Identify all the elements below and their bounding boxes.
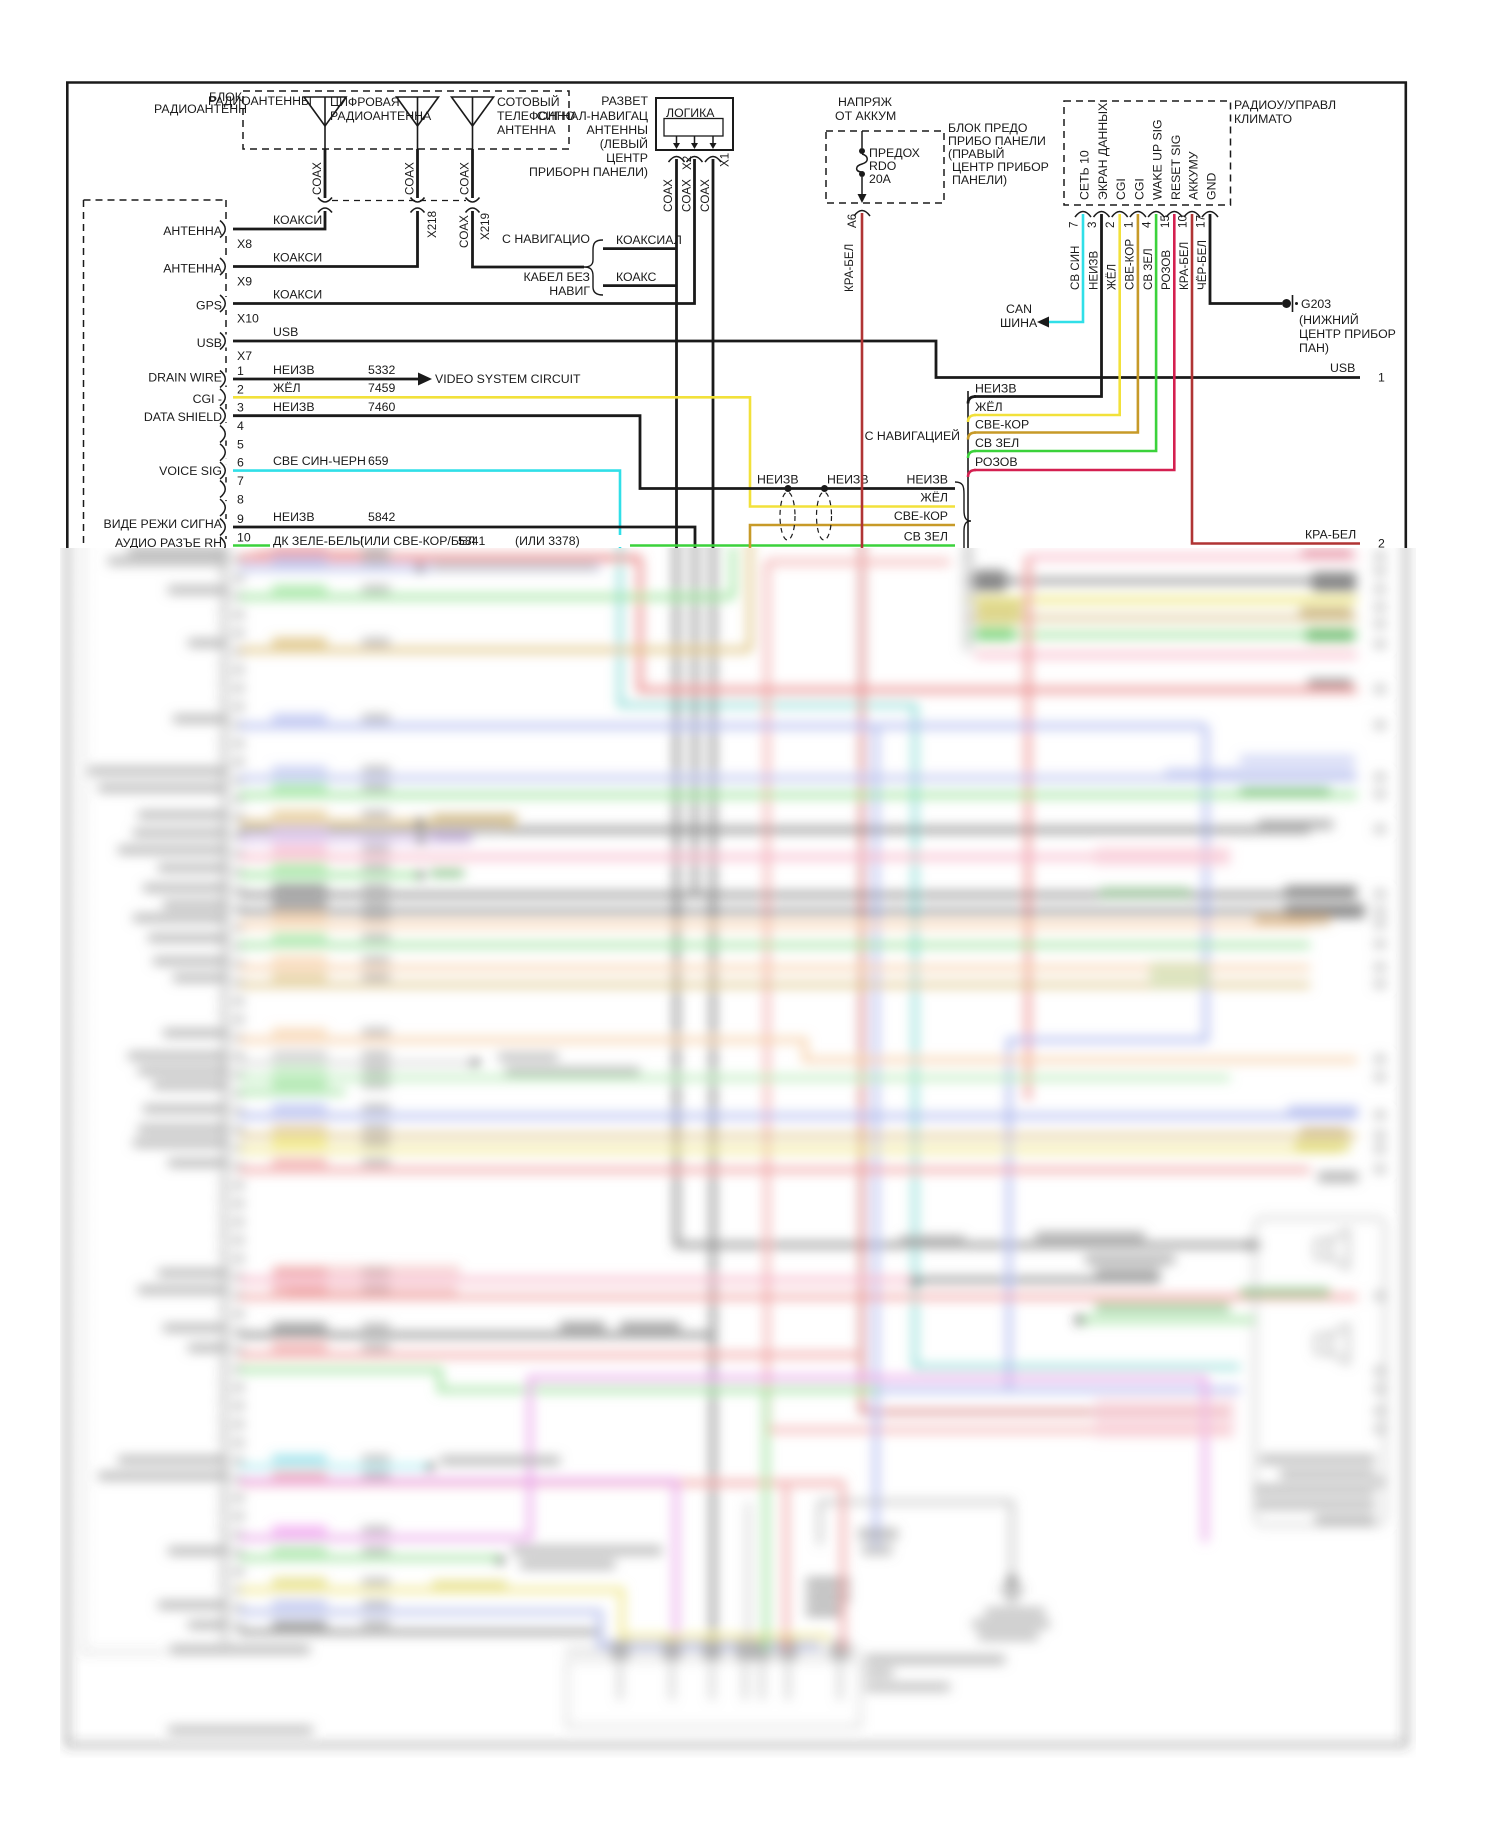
svg-text:ПАНЕЛИ): ПАНЕЛИ) bbox=[952, 173, 1007, 187]
svg-text:2: 2 bbox=[237, 382, 244, 396]
svg-text:СВЕ-КОР: СВЕ-КОР bbox=[1124, 239, 1137, 290]
svg-text:КРА-БЕЛ: КРА-БЕЛ bbox=[1178, 242, 1191, 290]
svg-text:17: 17 bbox=[1195, 215, 1208, 228]
svg-text:7: 7 bbox=[237, 474, 244, 488]
svg-text:RDO: RDO bbox=[869, 159, 896, 173]
svg-text:НЕИЗВ: НЕИЗВ bbox=[975, 382, 1017, 396]
svg-text:АНТЕННЫ: АНТЕННЫ bbox=[587, 123, 648, 137]
svg-text:КАБЕЛ БЕЗ: КАБЕЛ БЕЗ bbox=[523, 270, 590, 284]
svg-text:СВ ЗЕЛ: СВ ЗЕЛ bbox=[904, 530, 948, 544]
svg-text:РОЗОВ: РОЗОВ bbox=[1160, 250, 1173, 290]
svg-text:9: 9 bbox=[237, 512, 244, 526]
svg-text:ДК ЗЕЛЕ-БЕЛЫ: ДК ЗЕЛЕ-БЕЛЫ bbox=[273, 534, 363, 548]
svg-text:COAX: COAX bbox=[459, 162, 472, 195]
svg-text:5: 5 bbox=[237, 437, 244, 451]
svg-text:CGI: CGI bbox=[1132, 178, 1146, 200]
svg-text:GPS: GPS bbox=[196, 299, 222, 313]
svg-text:USB: USB bbox=[197, 336, 222, 350]
svg-text:НЕИЗВ: НЕИЗВ bbox=[273, 510, 315, 524]
svg-text:COAX: COAX bbox=[458, 215, 471, 248]
svg-text:ЖЁЛ: ЖЁЛ bbox=[1106, 264, 1119, 290]
svg-text:VOICE SIG: VOICE SIG bbox=[159, 464, 222, 478]
svg-text:CGI -: CGI - bbox=[193, 392, 222, 406]
svg-text:НЕИЗВ: НЕИЗВ bbox=[1087, 251, 1100, 290]
svg-text:СИГНАЛ-НАВИГАЦ: СИГНАЛ-НАВИГАЦ bbox=[537, 109, 648, 123]
svg-text:АККУМУ: АККУМУ bbox=[1187, 151, 1201, 200]
svg-text:COAX: COAX bbox=[681, 179, 694, 212]
svg-text:СВЕ СИН-ЧЕРН: СВЕ СИН-ЧЕРН bbox=[273, 454, 366, 468]
svg-text:СВЕ-КОР: СВЕ-КОР bbox=[975, 418, 1029, 432]
svg-text:РОЗОВ: РОЗОВ bbox=[975, 455, 1018, 469]
svg-text:15: 15 bbox=[1159, 215, 1172, 228]
svg-text:КОАКС: КОАКС bbox=[616, 270, 657, 284]
svg-text:АНТЕННА: АНТЕННА bbox=[163, 224, 223, 238]
svg-text:X2: X2 bbox=[681, 156, 694, 170]
svg-text:(НИЖНИЙ: (НИЖНИЙ bbox=[1299, 312, 1359, 327]
svg-text:КРА-БЕЛ: КРА-БЕЛ bbox=[1305, 528, 1356, 542]
svg-text:АУДИО РАЗЪЕ RH: АУДИО РАЗЪЕ RH bbox=[115, 536, 222, 550]
svg-text:ЭКРАН ДАННЫХ: ЭКРАН ДАННЫХ bbox=[1096, 103, 1110, 200]
svg-text:GND: GND bbox=[1205, 173, 1219, 200]
svg-text:20A: 20A bbox=[869, 172, 892, 186]
svg-text:РАДИОУ/УПРАВЛ: РАДИОУ/УПРАВЛ bbox=[1234, 98, 1336, 112]
svg-text:СВЕ-КОР: СВЕ-КОР bbox=[894, 509, 948, 523]
svg-text:НЕИЗВ: НЕИЗВ bbox=[906, 473, 948, 487]
svg-text:БЛОК ПРЕДО: БЛОК ПРЕДО bbox=[948, 121, 1027, 135]
svg-text:X218: X218 bbox=[426, 211, 439, 238]
svg-text:ШИНА: ШИНА bbox=[1000, 316, 1038, 330]
svg-text:СВ СИН: СВ СИН bbox=[1069, 246, 1082, 290]
svg-text:НЕИЗВ: НЕИЗВ bbox=[757, 473, 799, 487]
svg-text:КЛИМАТО: КЛИМАТО bbox=[1234, 112, 1292, 126]
svg-text:ЦЕНТР: ЦЕНТР bbox=[606, 151, 648, 165]
svg-text:НАВИГ: НАВИГ bbox=[549, 284, 590, 298]
svg-text:СОТОВЫЙ: СОТОВЫЙ bbox=[497, 94, 560, 109]
svg-text:8: 8 bbox=[237, 493, 244, 507]
svg-text:С НАВИГАЦИО: С НАВИГАЦИО bbox=[502, 232, 590, 246]
svg-text:СВ ЗЕЛ: СВ ЗЕЛ bbox=[1142, 248, 1155, 290]
svg-text:СВ ЗЕЛ: СВ ЗЕЛ bbox=[975, 436, 1019, 450]
svg-text:(ПРАВЫЙ: (ПРАВЫЙ bbox=[948, 146, 1004, 161]
svg-text:ЦЕНТР ПРИБОР: ЦЕНТР ПРИБОР bbox=[1299, 327, 1396, 341]
svg-text:COAX: COAX bbox=[404, 162, 417, 195]
svg-text:CGI: CGI bbox=[1114, 178, 1128, 200]
svg-text:АНТЕННА: АНТЕННА bbox=[163, 262, 223, 276]
svg-text:ПРЕДОХ: ПРЕДОХ bbox=[869, 146, 920, 160]
svg-text:ЖЁЛ: ЖЁЛ bbox=[920, 491, 948, 505]
svg-text:ОТ АККУМ: ОТ АККУМ bbox=[835, 109, 896, 123]
svg-text:КРА-БЕЛ: КРА-БЕЛ bbox=[843, 244, 856, 292]
svg-text:ЧЁР-БЕЛ: ЧЁР-БЕЛ bbox=[1196, 240, 1209, 290]
svg-text:ПРИБОРН ПАНЕЛИ): ПРИБОРН ПАНЕЛИ) bbox=[529, 165, 648, 179]
svg-text:РАЗВЕТ: РАЗВЕТ bbox=[601, 94, 648, 108]
svg-text:3: 3 bbox=[237, 401, 244, 415]
svg-text:X10: X10 bbox=[237, 312, 259, 326]
svg-text:АНТЕННА: АНТЕННА bbox=[497, 123, 557, 137]
svg-text:С НАВИГАЦИЕЙ: С НАВИГАЦИЕЙ bbox=[865, 428, 960, 443]
svg-text:X9: X9 bbox=[237, 275, 252, 289]
svg-text:1: 1 bbox=[237, 364, 244, 378]
svg-text:DRAIN WIRE: DRAIN WIRE bbox=[148, 371, 222, 385]
svg-text:10: 10 bbox=[237, 531, 251, 545]
svg-text:1: 1 bbox=[1122, 222, 1135, 228]
svg-text:ВИДЕ РЕЖИ СИГНА: ВИДЕ РЕЖИ СИГНА bbox=[104, 517, 223, 531]
svg-text:COAX: COAX bbox=[311, 162, 324, 195]
svg-text:НЕИЗВ: НЕИЗВ bbox=[273, 400, 315, 414]
svg-text:10: 10 bbox=[1177, 215, 1190, 228]
svg-text:COAX: COAX bbox=[662, 179, 675, 212]
svg-text:ЦИФРОВАЯ: ЦИФРОВАЯ bbox=[330, 95, 400, 109]
svg-text:7: 7 bbox=[1068, 222, 1081, 228]
svg-text:5842: 5842 bbox=[368, 510, 396, 524]
svg-text:(ИЛИ 3378): (ИЛИ 3378) bbox=[515, 534, 580, 548]
svg-text:2: 2 bbox=[1104, 222, 1117, 228]
svg-text:VIDEO SYSTEM CIRCUIT: VIDEO SYSTEM CIRCUIT bbox=[435, 372, 581, 386]
svg-text:НАПРЯЖ: НАПРЯЖ bbox=[838, 95, 893, 109]
svg-text:CAN: CAN bbox=[1006, 302, 1032, 316]
svg-text:A6: A6 bbox=[846, 214, 859, 228]
svg-text:КОАКСИАЛ: КОАКСИАЛ bbox=[616, 233, 682, 247]
svg-text:(ЛЕВЫЙ: (ЛЕВЫЙ bbox=[600, 136, 648, 151]
svg-text:659: 659 bbox=[368, 454, 389, 468]
svg-text:5841: 5841 bbox=[458, 534, 486, 548]
svg-text:DATA SHIELD: DATA SHIELD bbox=[144, 410, 222, 424]
svg-text:ПРИБО ПАНЕЛИ: ПРИБО ПАНЕЛИ bbox=[948, 134, 1046, 148]
svg-text:ЦЕНТР ПРИБОР: ЦЕНТР ПРИБОР bbox=[952, 160, 1049, 174]
svg-text:USB: USB bbox=[1330, 361, 1355, 375]
svg-text:X1: X1 bbox=[719, 153, 732, 167]
svg-text:КОАКСИ: КОАКСИ bbox=[273, 251, 322, 265]
svg-text:7459: 7459 bbox=[368, 381, 396, 395]
svg-text:НЕИЗВ: НЕИЗВ bbox=[273, 363, 315, 377]
svg-text:6: 6 bbox=[237, 456, 244, 470]
svg-text:СЕТЬ 10: СЕТЬ 10 bbox=[1078, 150, 1092, 200]
svg-text:ПАН): ПАН) bbox=[1299, 341, 1329, 355]
svg-text:X8: X8 bbox=[237, 237, 252, 251]
svg-text:X7: X7 bbox=[237, 349, 252, 363]
svg-text:КОАКСИ: КОАКСИ bbox=[273, 213, 322, 227]
svg-text:RESET SIG: RESET SIG bbox=[1169, 135, 1183, 200]
svg-text:4: 4 bbox=[1141, 221, 1154, 228]
svg-text:РАДИОАНТЕННА: РАДИОАНТЕННА bbox=[330, 109, 432, 123]
svg-text:3: 3 bbox=[1086, 222, 1099, 228]
svg-text:USB: USB bbox=[273, 325, 298, 339]
svg-text:ЖЁЛ: ЖЁЛ bbox=[975, 400, 1003, 414]
svg-text:КОАКСИ: КОАКСИ bbox=[273, 288, 322, 302]
svg-text:7460: 7460 bbox=[368, 400, 396, 414]
svg-text:X219: X219 bbox=[479, 213, 492, 240]
svg-text:1: 1 bbox=[1378, 371, 1385, 385]
svg-text:G203: G203 bbox=[1301, 297, 1331, 311]
svg-text:COAX: COAX bbox=[699, 179, 712, 212]
svg-text:4: 4 bbox=[237, 419, 244, 433]
svg-text:ЖЁЛ: ЖЁЛ bbox=[273, 381, 301, 395]
svg-text:РАДИОАНТЕНН: РАДИОАНТЕНН bbox=[154, 102, 247, 116]
svg-text:5332: 5332 bbox=[368, 363, 396, 377]
svg-text:WAKE UP SIG: WAKE UP SIG bbox=[1151, 119, 1165, 200]
